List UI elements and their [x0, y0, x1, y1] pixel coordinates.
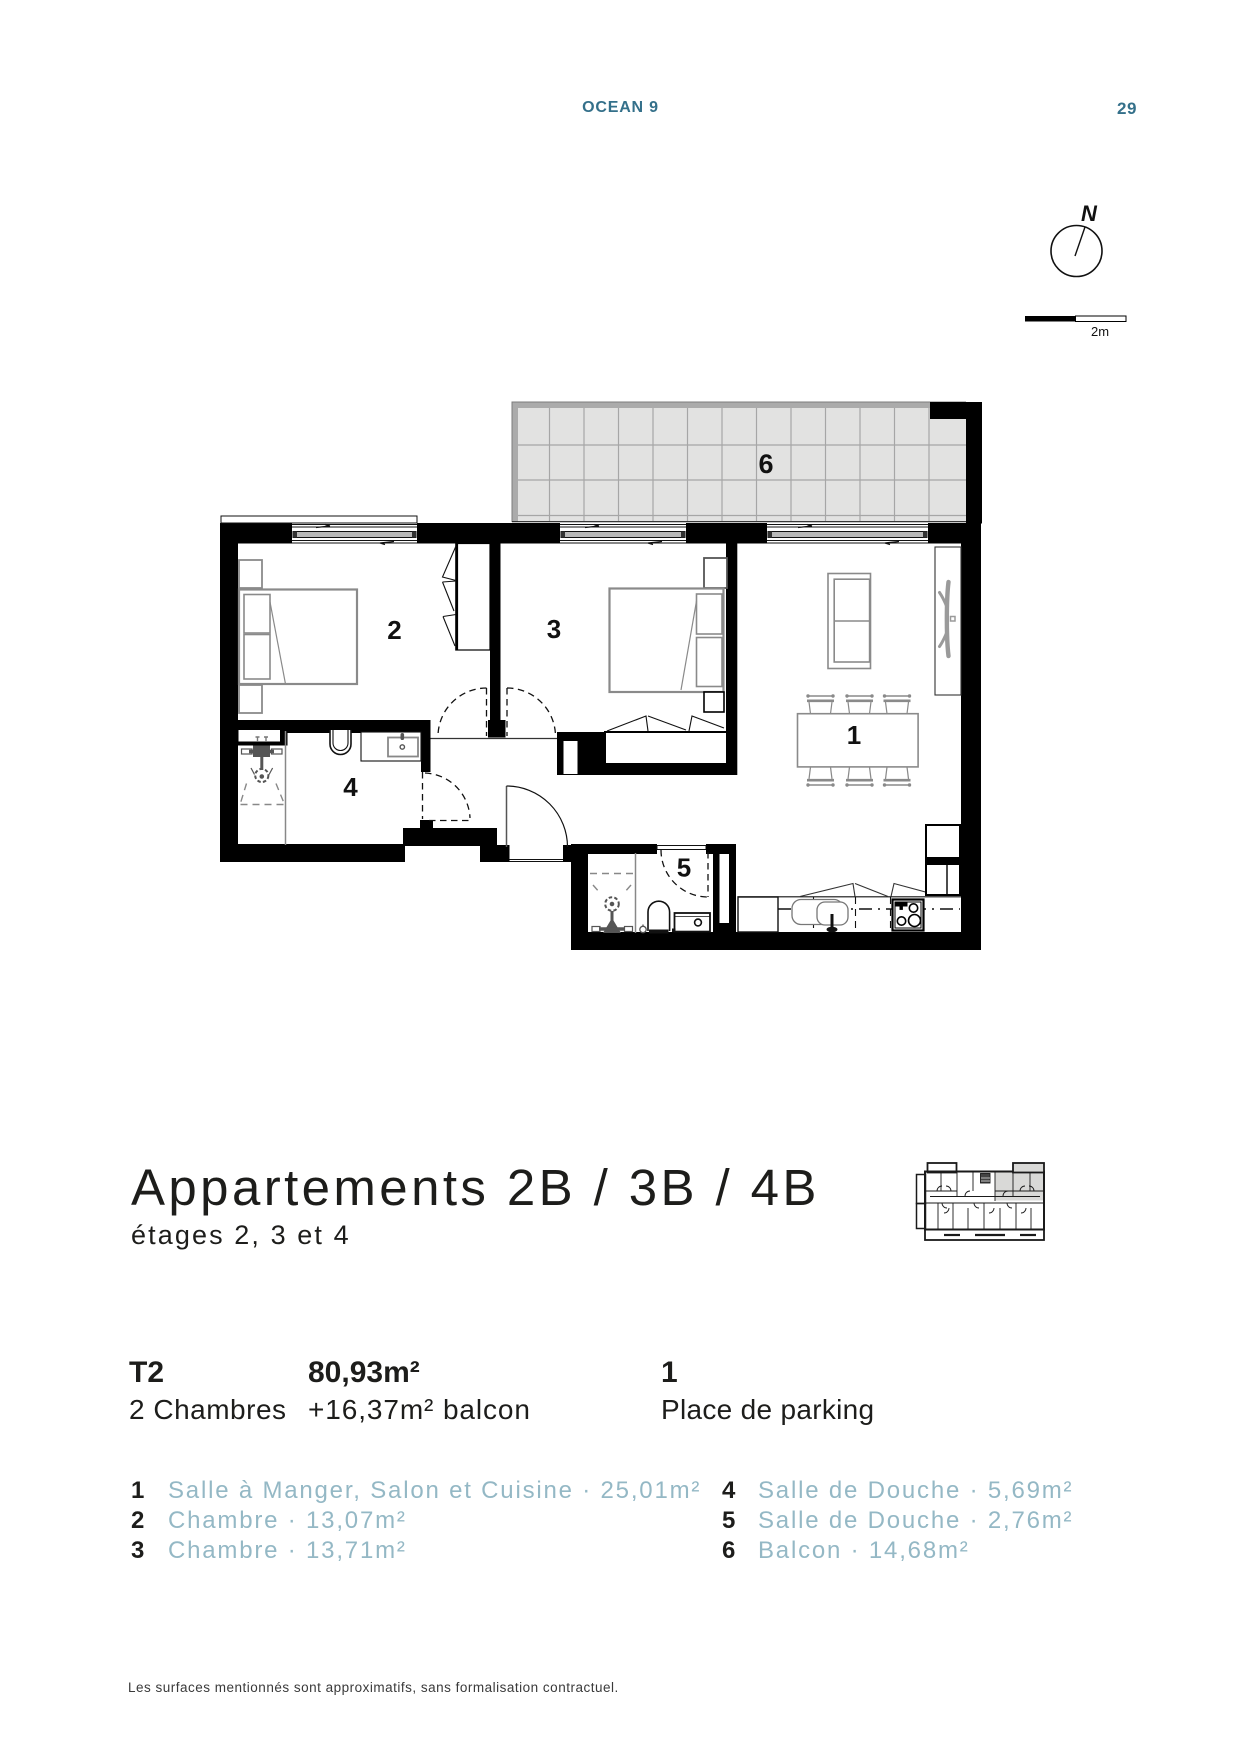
svg-text:1: 1 — [847, 720, 861, 750]
svg-text:N: N — [1081, 201, 1098, 226]
svg-text:4: 4 — [343, 772, 358, 802]
svg-text:6: 6 — [758, 449, 773, 479]
svg-text:2: 2 — [387, 615, 401, 645]
svg-text:5: 5 — [677, 853, 691, 883]
svg-text:2m: 2m — [1091, 324, 1109, 339]
svg-text:3: 3 — [547, 614, 561, 644]
